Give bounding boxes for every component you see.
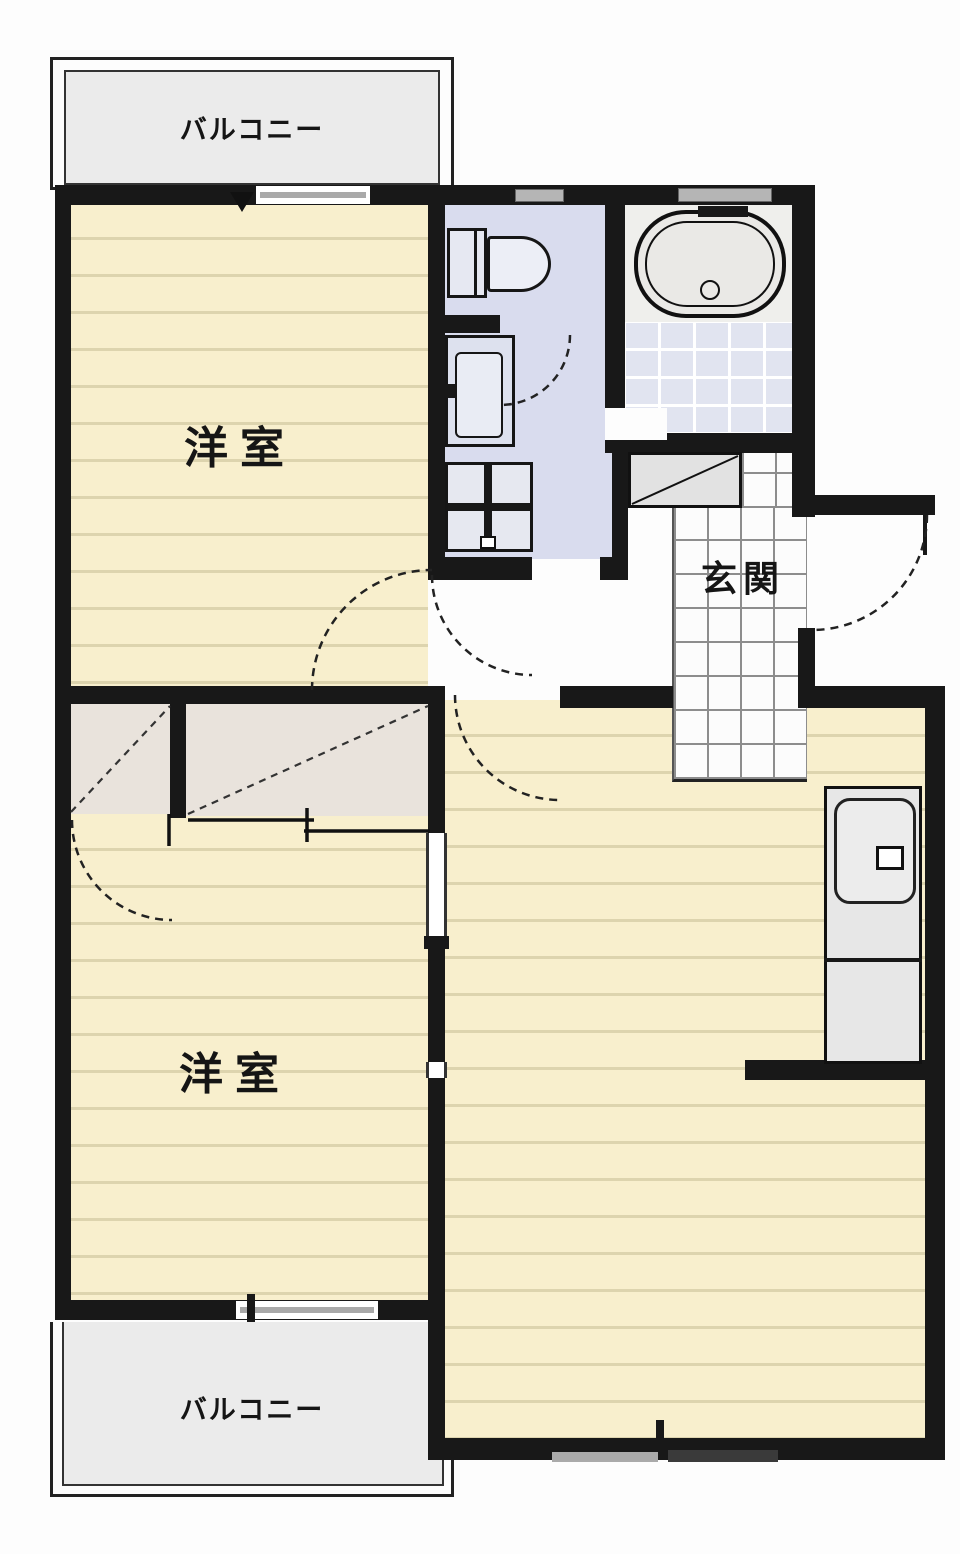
washer-pan-cross-h xyxy=(448,503,530,511)
closet-left-floor xyxy=(71,704,170,814)
opening-bedroom2-living-small xyxy=(426,1062,447,1078)
closet-right-floor xyxy=(186,704,428,816)
window-bedroom1-top-sill xyxy=(260,192,366,198)
window-living-bottom-sill-dark xyxy=(668,1450,778,1462)
window-bedroom2-living xyxy=(426,833,447,948)
balcony-bottom-label: バルコニー xyxy=(92,1388,412,1427)
wall-washroom-bottom-left xyxy=(428,557,532,580)
kitchen-sink-handle xyxy=(876,846,904,870)
entrance-door-leaf xyxy=(923,515,927,555)
wall-living-top-left xyxy=(560,686,673,708)
toilet-tank-line xyxy=(474,231,477,295)
wall-bathroom-right xyxy=(792,185,815,517)
washer-pan-drain xyxy=(480,536,496,549)
entrance-label: 玄関 xyxy=(678,550,808,602)
window-bedroom2-bottom-sill xyxy=(240,1307,374,1313)
wall-left-lower xyxy=(55,686,71,1320)
wall-washroom-bottom-right xyxy=(600,557,628,580)
door-opening-bathroom xyxy=(605,408,667,440)
window-washroom-top xyxy=(515,189,564,202)
window-living-bottom-tick xyxy=(656,1420,664,1452)
bathtub-faucet xyxy=(698,206,748,217)
toilet-bowl-icon xyxy=(487,236,551,292)
wall-bedroom2-right-low xyxy=(428,1078,445,1438)
vanity-basin xyxy=(455,352,503,438)
window-cap-tick xyxy=(424,936,449,949)
wall-closet-divider xyxy=(170,704,186,818)
vent-marker-icon xyxy=(230,192,254,212)
vanity-faucet xyxy=(445,384,455,398)
bedroom-upper-label: 洋室 xyxy=(140,412,340,476)
door-arc-washroom xyxy=(432,575,532,675)
window-living-bottom-sill xyxy=(552,1452,658,1462)
wall-bedroom2-right-mid xyxy=(428,948,445,1062)
floor-plan: バルコニー バルコニー xyxy=(0,0,960,1554)
door-arc-entrance xyxy=(812,515,927,630)
shoe-cabinet-fixture xyxy=(628,452,742,508)
wall-entrance-top xyxy=(805,495,935,515)
toilet-tank-icon xyxy=(447,228,487,298)
window-bathroom-top xyxy=(678,188,772,202)
bathtub-drain xyxy=(700,280,720,300)
wall-washroom-right-low xyxy=(612,453,628,560)
wall-bedroom1-right xyxy=(428,185,445,560)
kitchen-counter-divider xyxy=(824,958,922,962)
balcony-top-label: バルコニー xyxy=(92,108,412,147)
wall-closet-top xyxy=(55,686,445,704)
bedroom-lower-label: 洋室 xyxy=(135,1038,335,1102)
wall-left-upper xyxy=(55,185,71,705)
window-bedroom2-bottom-tick xyxy=(247,1294,255,1322)
wall-right-outer xyxy=(925,686,945,1460)
wall-closet-right-end xyxy=(428,686,445,838)
wall-toilet-partition xyxy=(445,315,500,333)
